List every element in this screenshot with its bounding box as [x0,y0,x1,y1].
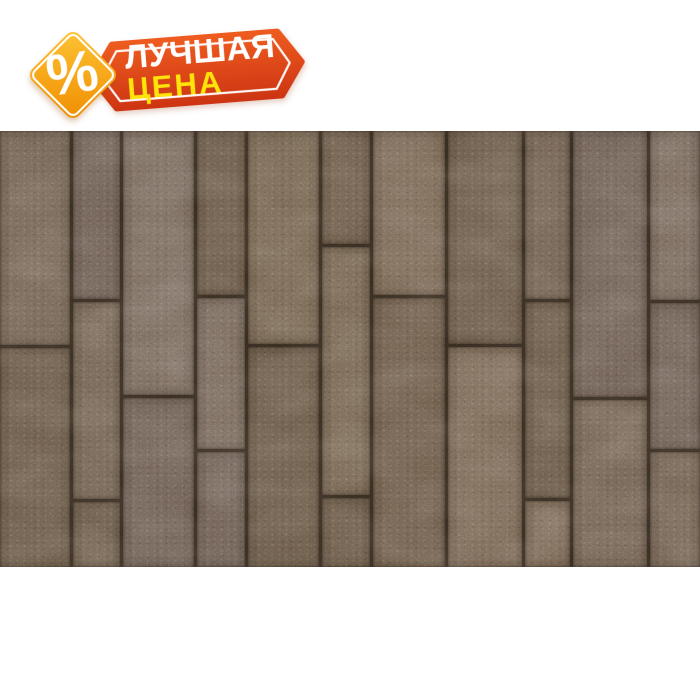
badge-ribbon: ЛУЧШАЯ ЦЕНА [85,25,308,116]
paving-plank [0,348,70,567]
paving-plank [123,131,194,395]
paving-plank [73,302,120,499]
paving-plank [248,131,319,344]
badge-line2: ЦЕНА [126,62,279,106]
paving-plank [123,398,194,567]
paving-plank [573,400,647,567]
paving-plank [248,347,319,567]
paving-plank [573,131,647,397]
paving-plank [373,131,445,295]
discount-diamond: % [26,28,119,121]
paving-plank [197,131,245,295]
product-image: ЛУЧШАЯ ЦЕНА % [0,0,700,700]
paving-plank [650,131,700,300]
paving-plank [373,298,445,567]
paving-plank [322,247,370,495]
percent-icon: % [43,36,103,110]
badge-line1: ЛУЧШАЯ [123,28,276,75]
paving-plank [650,452,700,567]
paving-photo [0,131,700,567]
best-price-badge: ЛУЧШАЯ ЦЕНА % [0,0,330,135]
paving-plank [650,303,700,449]
ribbon-text: ЛУЧШАЯ ЦЕНА [123,28,278,106]
paving-plank [448,347,522,567]
paving-plank [448,131,522,344]
paving-plank [322,498,370,567]
planks-layer [0,131,700,567]
paving-plank [322,131,370,244]
paving-plank [197,452,245,567]
paving-plank [525,302,570,498]
paving-plank [73,502,120,567]
paving-plank [73,131,120,299]
paving-plank [525,501,570,567]
ribbon-inner-outline [100,38,291,103]
paving-plank [525,131,570,299]
paving-plank [0,131,70,345]
paving-plank [197,298,245,449]
ribbon-shape [85,25,308,116]
